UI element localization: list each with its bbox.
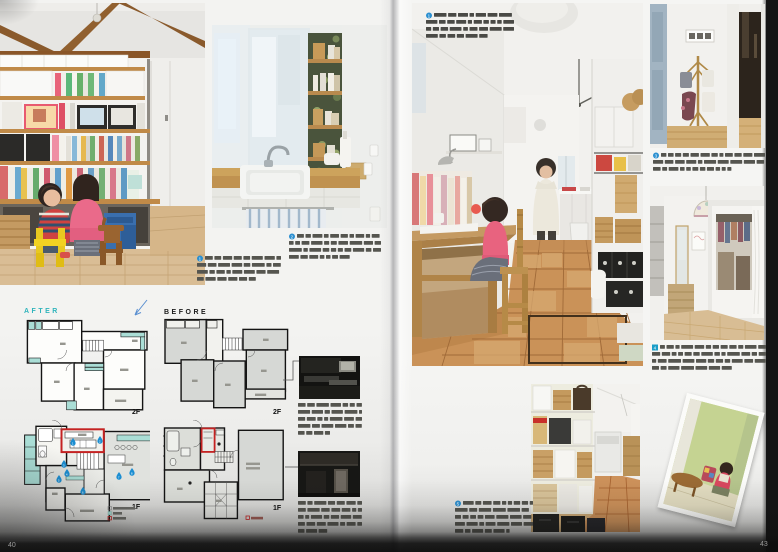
svg-text:2F: 2F bbox=[132, 409, 141, 416]
svg-text:2F: 2F bbox=[273, 409, 282, 416]
